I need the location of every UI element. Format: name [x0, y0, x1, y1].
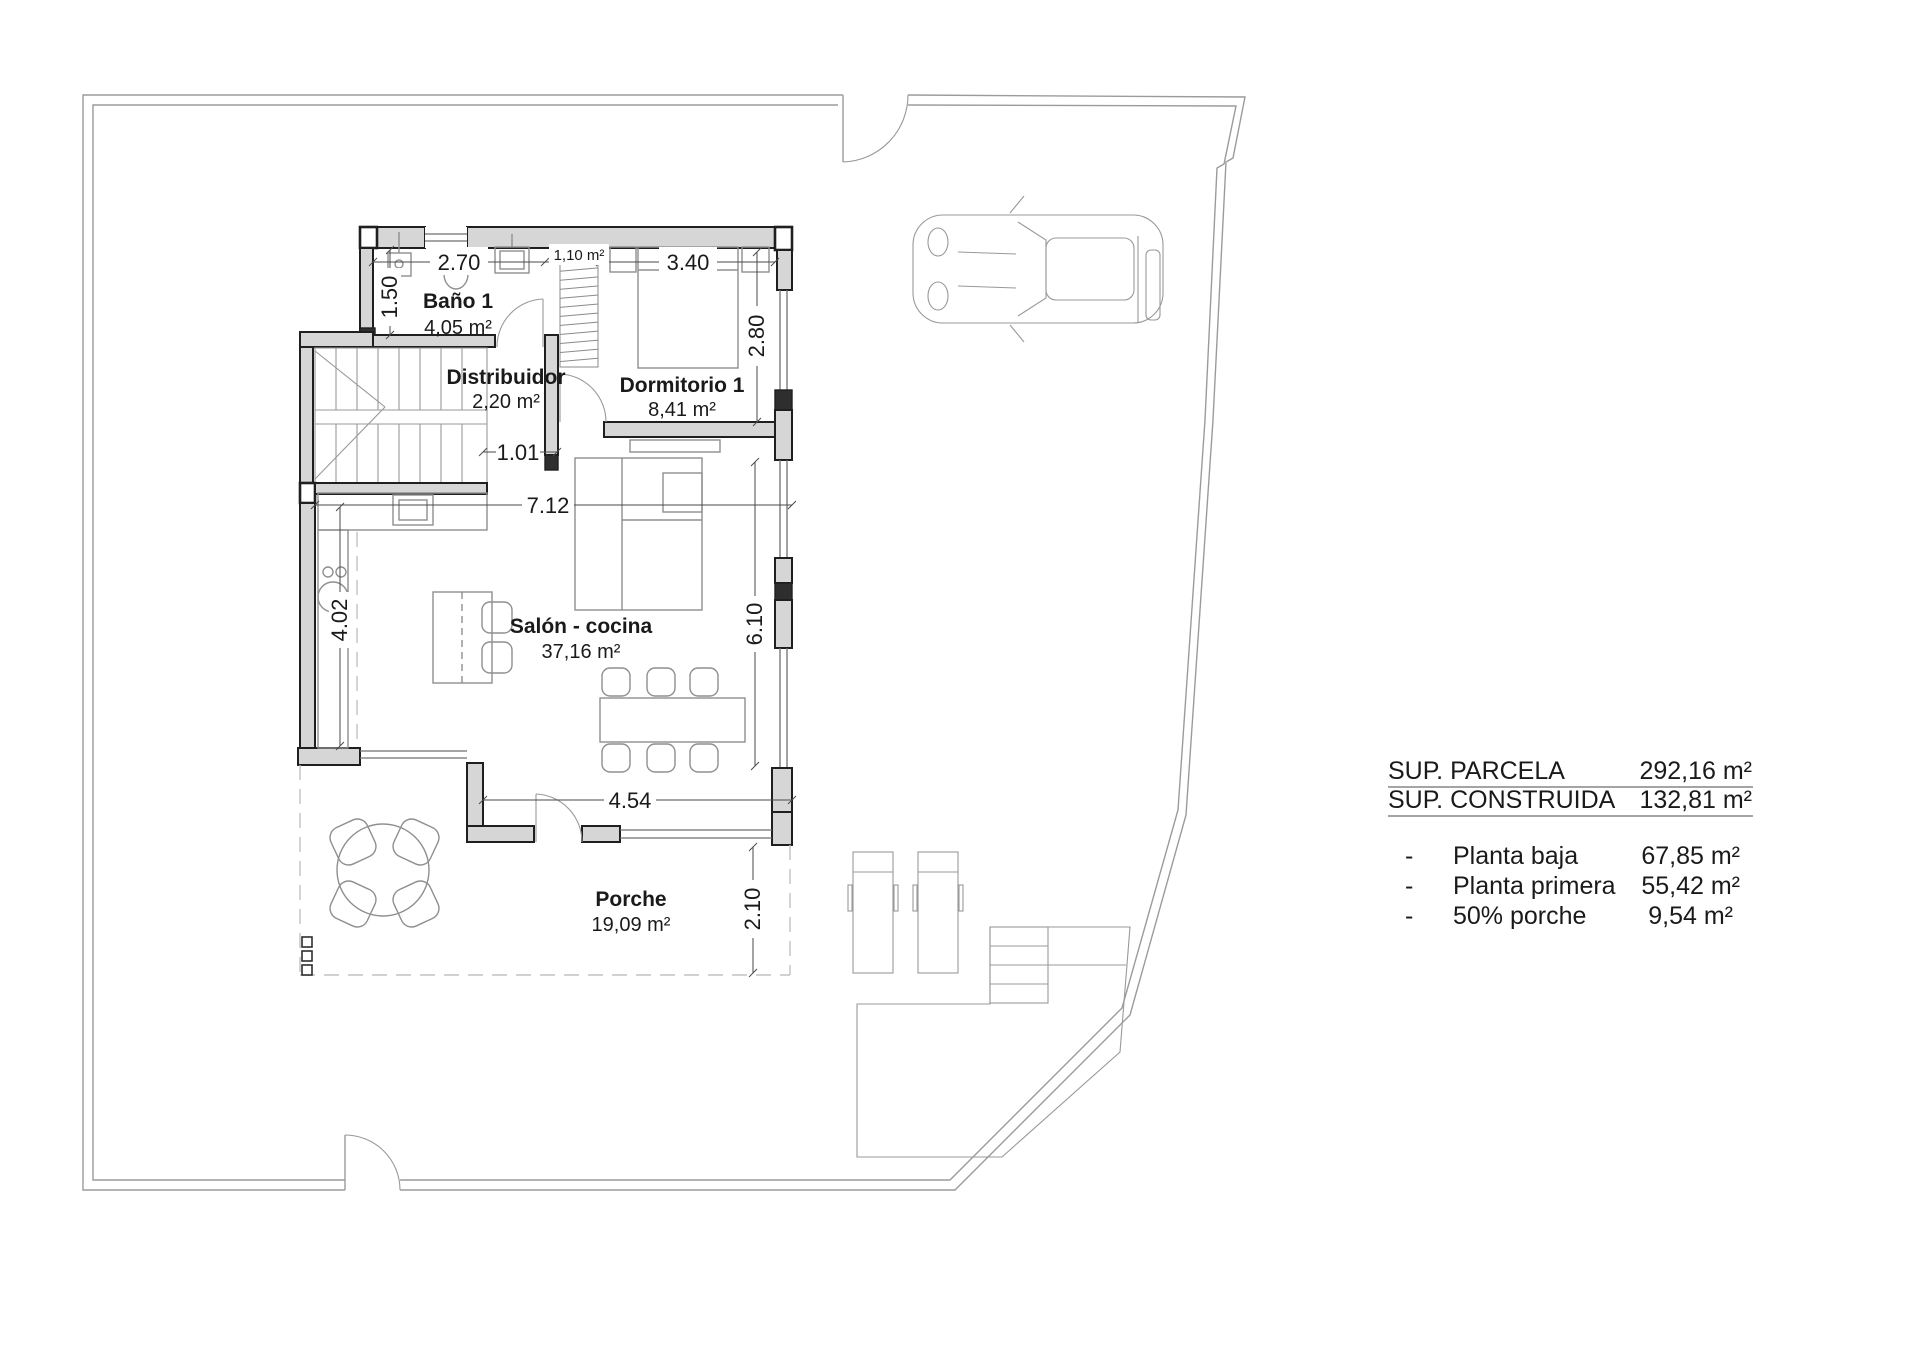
dim-kitchen-depth: 4.02 — [327, 599, 352, 642]
pool-terrace — [857, 927, 1130, 1157]
gate-bottom — [345, 1135, 400, 1190]
dining-set — [600, 668, 745, 772]
summary-bullet: - — [1405, 902, 1413, 930]
summary-value-planta-primera: 55,42 m² — [1641, 872, 1740, 900]
dim-salon-width: 7.12 — [527, 493, 570, 518]
garden-pool — [848, 852, 1130, 1157]
chair — [647, 668, 675, 696]
dim-salon-depth: 6.10 — [742, 603, 767, 646]
outdoor-table-set — [326, 815, 442, 930]
sun-lounger — [848, 852, 898, 973]
summary-value-parcela: 292,16 m² — [1639, 757, 1752, 785]
dim-hall-opening: 1.01 — [497, 440, 540, 465]
porch — [300, 765, 790, 975]
porch-posts — [302, 937, 312, 975]
room-name-dormitorio: Dormitorio 1 — [620, 374, 745, 397]
door-entrance — [536, 794, 582, 842]
window-living-east-1 — [780, 460, 787, 558]
room-name-distribuidor: Distribuidor — [447, 366, 566, 389]
stool — [482, 602, 512, 633]
room-area-distribuidor: 2,20 m² — [472, 391, 540, 413]
dim-dorm-width: 3.40 — [667, 250, 710, 275]
area-summary-table: SUP. PARCELA 292,16 m² SUP. CONSTRUIDA 1… — [1388, 757, 1753, 930]
closet-area-label: 1,10 m² — [554, 247, 605, 264]
chair — [602, 744, 630, 772]
sideboard — [630, 440, 720, 452]
closet-hatched — [560, 252, 598, 367]
chair — [647, 744, 675, 772]
outdoor-chair — [389, 877, 442, 930]
door-bathroom — [497, 299, 543, 347]
window-kitchen-south — [360, 751, 467, 758]
outdoor-chair — [389, 815, 442, 868]
stool — [482, 642, 512, 673]
summary-label-parcela: SUP. PARCELA — [1388, 757, 1565, 785]
chair — [690, 668, 718, 696]
nightstand-right — [742, 247, 769, 272]
summary-value-planta-baja: 67,85 m² — [1641, 842, 1740, 870]
car-top-view — [913, 196, 1163, 342]
summary-label-porche: 50% porche — [1453, 902, 1586, 930]
dim-porch-width: 4.54 — [609, 788, 652, 813]
room-area-porche: 19,09 m² — [592, 914, 671, 936]
window-porch-south — [620, 830, 772, 838]
floor-plan-drawing: 2.70 1,10 m² 3.40 1.50 2.80 1.01 7.12 — [0, 0, 1920, 1353]
window-bedroom-east — [780, 290, 787, 390]
summary-value-porche: 9,54 m² — [1648, 902, 1733, 930]
room-area-dormitorio: 8,41 m² — [648, 399, 716, 421]
floor-plan-page: 2.70 1,10 m² 3.40 1.50 2.80 1.01 7.12 — [0, 0, 1920, 1353]
dim-dorm-depth: 2.80 — [744, 315, 769, 358]
dim-bano-width: 2.70 — [438, 250, 481, 275]
summary-label-construida: SUP. CONSTRUIDA — [1388, 786, 1616, 814]
dim-porch-depth: 2.10 — [740, 888, 765, 931]
outdoor-chair — [326, 815, 379, 868]
dim-bano-depth: 1.50 — [377, 276, 402, 319]
summary-label-planta-primera: Planta primera — [1453, 872, 1616, 900]
chair — [690, 744, 718, 772]
pool-steps — [990, 927, 1126, 1003]
chair — [602, 668, 630, 696]
summary-bullet: - — [1405, 842, 1413, 870]
summary-value-construida: 132,81 m² — [1639, 786, 1752, 814]
cooktop — [393, 495, 433, 525]
summary-bullet: - — [1405, 872, 1413, 900]
window-living-east-2 — [780, 648, 787, 768]
sun-lounger — [913, 852, 963, 973]
room-name-salon: Salón - cocina — [510, 615, 653, 638]
kitchen-island — [433, 592, 512, 683]
gate-top — [843, 95, 908, 162]
window-bathroom — [425, 227, 467, 248]
summary-label-planta-baja: Planta baja — [1453, 842, 1578, 870]
room-area-salon: 37,16 m² — [542, 641, 621, 663]
room-name-bano: Baño 1 — [423, 290, 493, 313]
room-name-porche: Porche — [595, 888, 666, 911]
door-bedroom — [560, 374, 606, 422]
room-area-bano: 4,05 m² — [424, 317, 492, 339]
nightstand-left — [610, 247, 636, 272]
sofa — [575, 458, 702, 610]
